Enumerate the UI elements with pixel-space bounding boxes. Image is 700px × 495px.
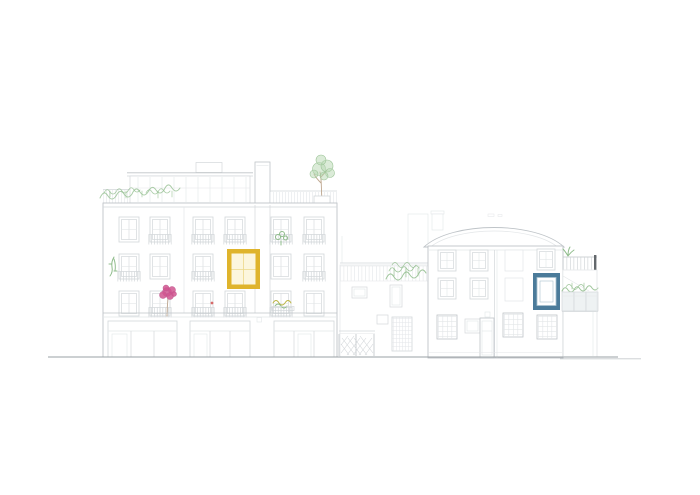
- entrance-door: [480, 318, 494, 358]
- middle-building: [339, 214, 430, 357]
- small-red-flower: [211, 302, 214, 305]
- windows-row-2: [438, 278, 523, 301]
- railing-plant: [563, 247, 574, 256]
- storefront-left: [108, 321, 177, 357]
- railing-end-post: [594, 255, 596, 270]
- infill-wall: [340, 265, 430, 357]
- chimney: [431, 211, 444, 230]
- elevator-tower: [255, 162, 270, 205]
- blue-highlight-window: [533, 273, 560, 310]
- tree-foliage: [310, 155, 335, 180]
- yellow-highlight-window: [227, 249, 260, 289]
- top-railing: [563, 255, 597, 270]
- roof-tree: [310, 155, 335, 205]
- roof-vent: [488, 214, 494, 217]
- storefront-right: [274, 321, 334, 357]
- roof-pavilion: [127, 163, 253, 204]
- arched-roof: [424, 214, 564, 249]
- storefronts: [108, 321, 334, 357]
- right-building: [424, 211, 564, 358]
- clerestory-box: [196, 163, 222, 173]
- elevation-drawing: [0, 0, 700, 495]
- storefront-middle: [190, 321, 250, 357]
- background-structure: [408, 214, 428, 263]
- stair-grid-window: [392, 317, 412, 351]
- annex-wall: [563, 270, 597, 357]
- side-terrace: [562, 247, 598, 357]
- roof-vent: [498, 215, 502, 217]
- left-building: [100, 155, 337, 357]
